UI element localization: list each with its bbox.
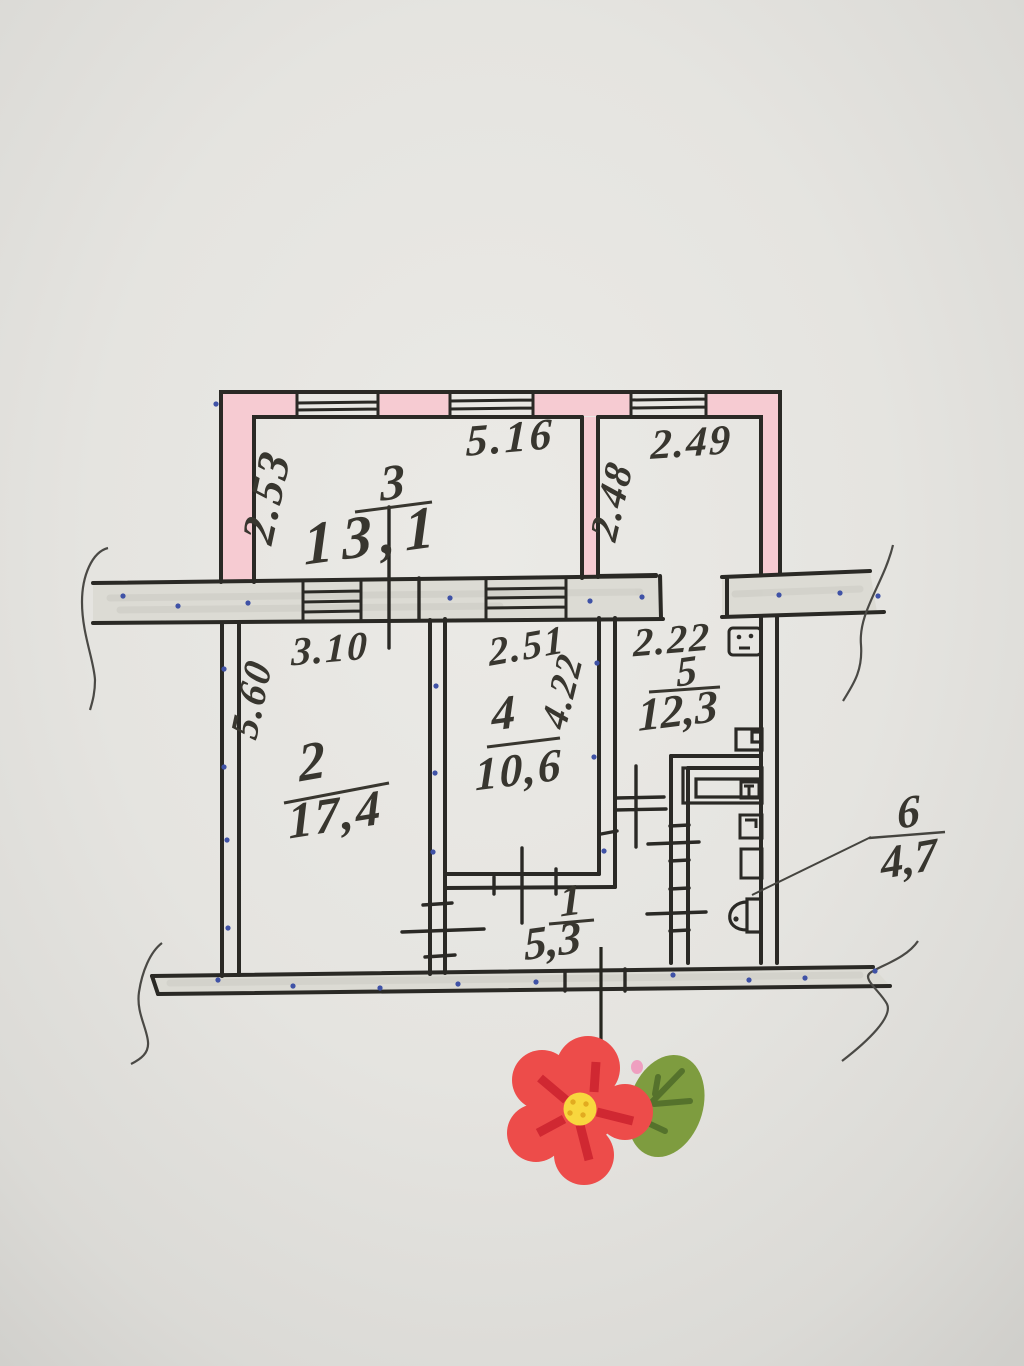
svg-text:4,7: 4,7 [878, 828, 941, 890]
svg-text:5,3: 5,3 [523, 911, 582, 970]
svg-text:5.16: 5.16 [465, 409, 555, 466]
svg-text:2.49: 2.49 [649, 416, 733, 469]
svg-text:3.10: 3.10 [290, 623, 369, 675]
svg-text:2: 2 [295, 729, 327, 794]
svg-text:4: 4 [490, 685, 517, 742]
svg-text:12,3: 12,3 [637, 680, 718, 741]
svg-text:2.22: 2.22 [632, 614, 711, 666]
svg-text:10,6: 10,6 [474, 739, 563, 801]
